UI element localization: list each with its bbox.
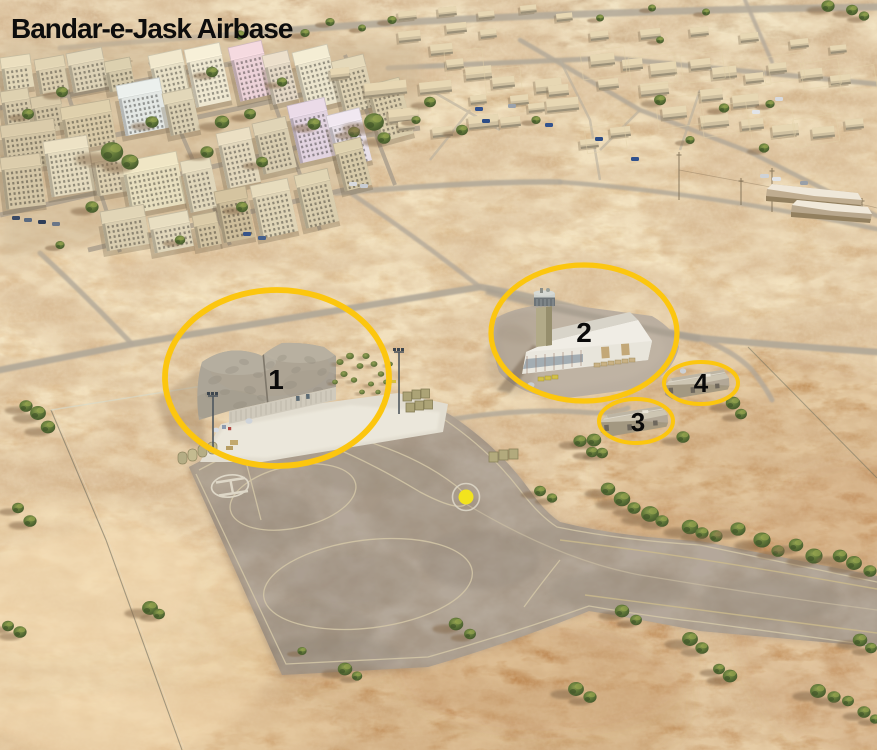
svg-text:Bandar-e-Jask Airbase: Bandar-e-Jask Airbase xyxy=(11,13,293,44)
svg-text:2: 2 xyxy=(576,317,592,348)
svg-text:3: 3 xyxy=(631,407,645,437)
svg-text:4: 4 xyxy=(694,368,709,398)
svg-text:1: 1 xyxy=(268,364,284,395)
